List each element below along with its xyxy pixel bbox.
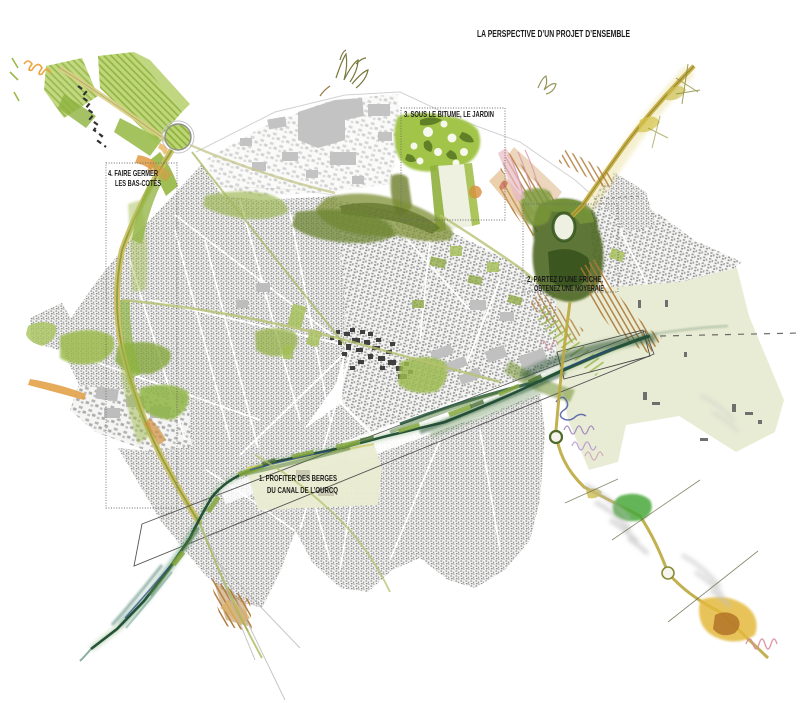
svg-text:LA PERSPECTIVE D’UN PROJET D’E: LA PERSPECTIVE D’UN PROJET D’ENSEMBLE [477, 28, 630, 40]
svg-text:4. FAIRE GERMER: 4. FAIRE GERMER [108, 168, 158, 178]
svg-text:1. PROFITER DES BERGES: 1. PROFITER DES BERGES [259, 473, 337, 483]
svg-text:OBTENEZ UNE NOYERAIE: OBTENEZ UNE NOYERAIE [534, 283, 604, 293]
svg-text:LES BAS-COTÉS: LES BAS-COTÉS [115, 178, 161, 188]
svg-text:DU CANAL DE L’OURCQ: DU CANAL DE L’OURCQ [267, 485, 338, 495]
svg-text:3. SOUS LE BITUME, LE JARDIN: 3. SOUS LE BITUME, LE JARDIN [404, 109, 494, 119]
